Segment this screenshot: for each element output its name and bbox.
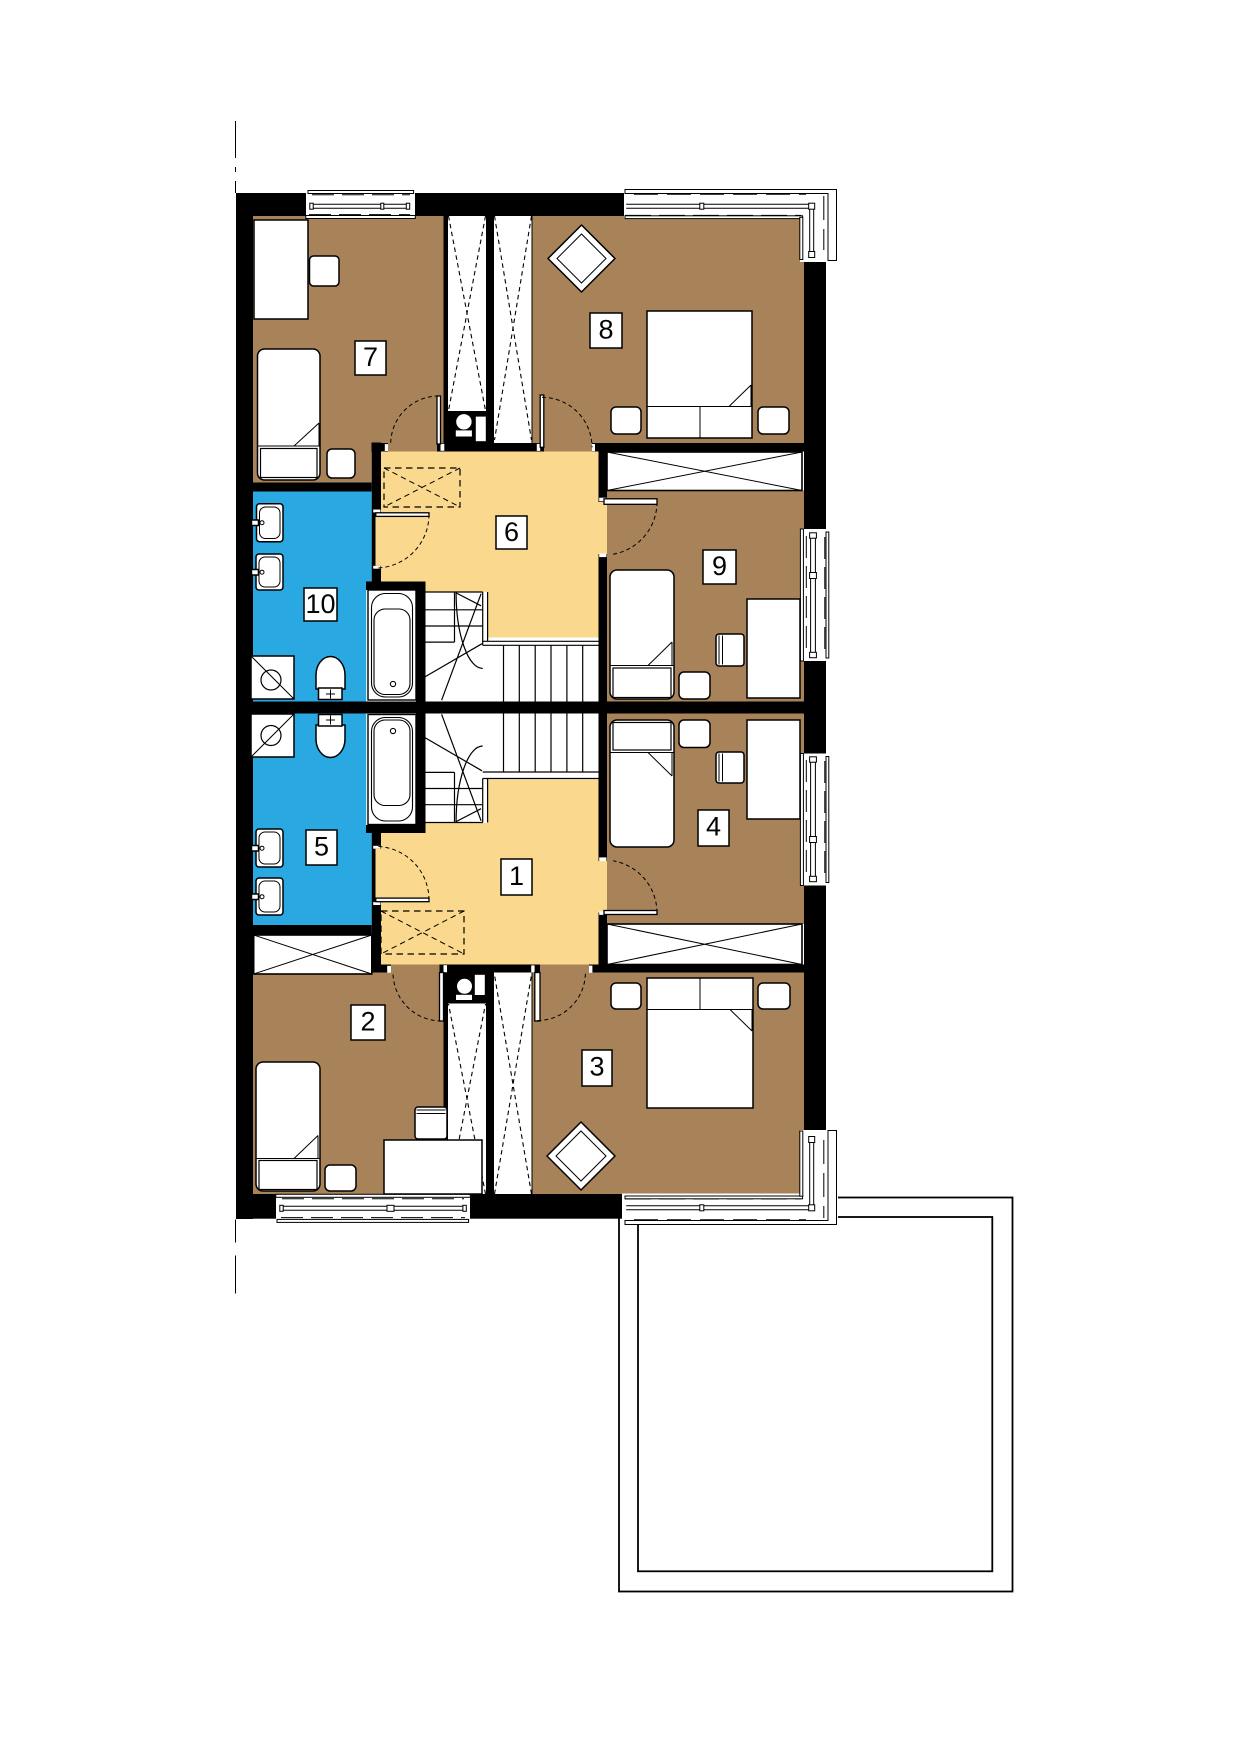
svg-text:9: 9 bbox=[712, 551, 727, 581]
svg-text:7: 7 bbox=[363, 342, 378, 372]
svg-text:3: 3 bbox=[589, 1051, 604, 1081]
svg-text:4: 4 bbox=[706, 811, 721, 841]
svg-text:8: 8 bbox=[598, 314, 613, 344]
svg-text:1: 1 bbox=[509, 861, 524, 891]
svg-text:5: 5 bbox=[314, 831, 329, 861]
svg-text:2: 2 bbox=[360, 1006, 375, 1036]
svg-text:10: 10 bbox=[305, 589, 335, 619]
svg-text:6: 6 bbox=[504, 517, 519, 547]
